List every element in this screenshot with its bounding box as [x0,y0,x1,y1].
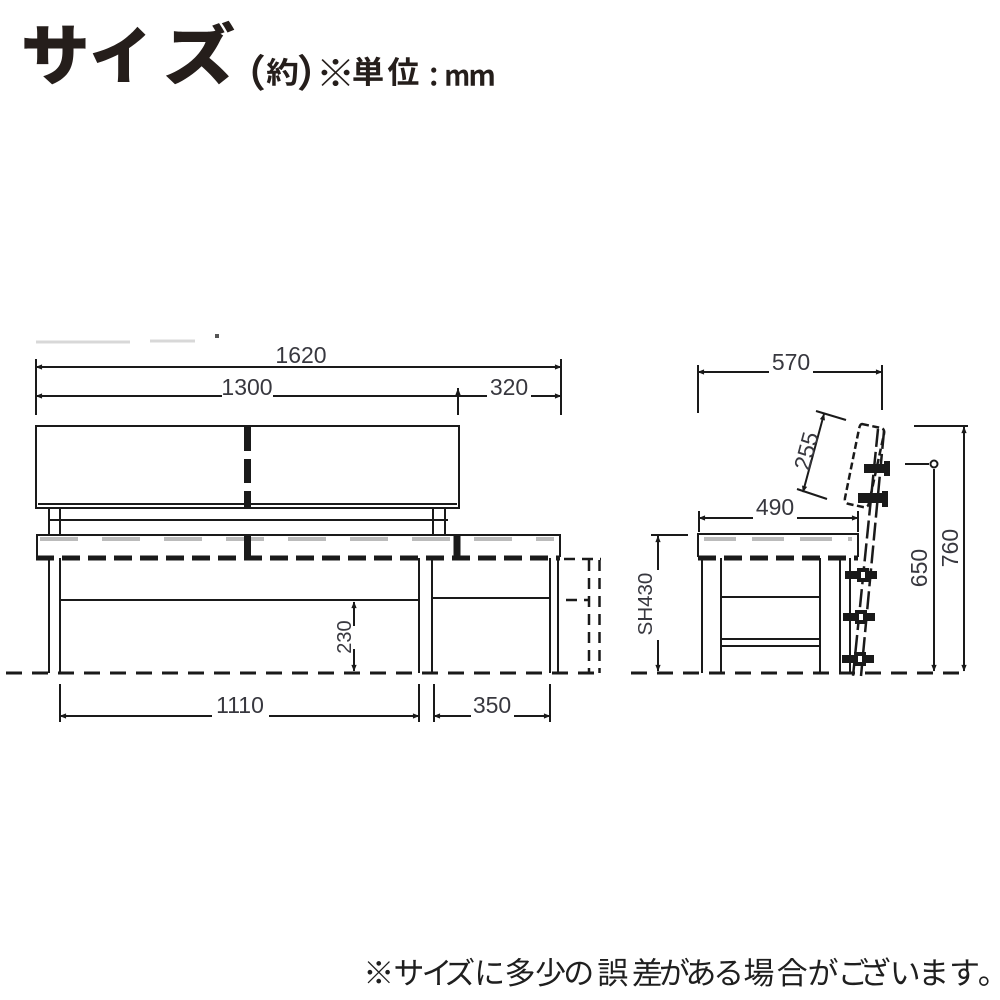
svg-text:1620: 1620 [275,342,326,368]
svg-text:350: 350 [473,692,511,718]
svg-text:490: 490 [756,494,794,520]
svg-text:255: 255 [789,429,824,473]
svg-text:SH430: SH430 [634,573,657,636]
svg-text:320: 320 [490,374,528,400]
svg-text:650: 650 [906,549,932,587]
svg-text:1110: 1110 [216,692,264,718]
svg-text:230: 230 [334,620,356,653]
svg-text:760: 760 [937,529,963,567]
svg-text:1300: 1300 [221,374,272,400]
svg-text:570: 570 [772,349,810,375]
